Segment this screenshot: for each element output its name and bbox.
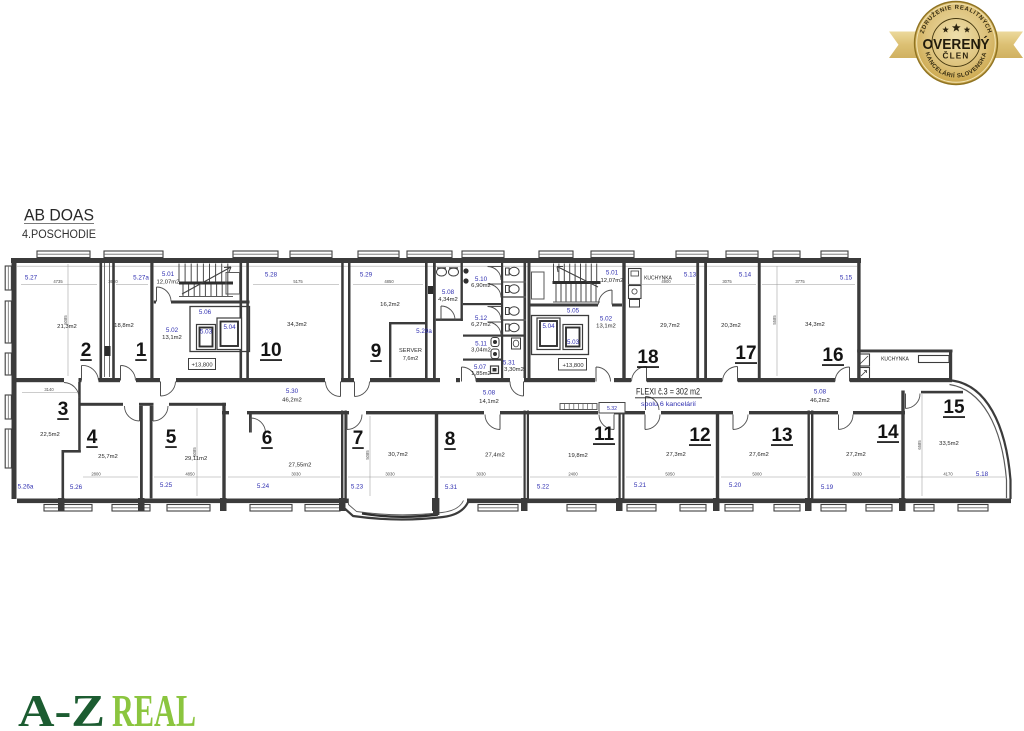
- svg-text:16,2m2: 16,2m2: [380, 302, 400, 308]
- svg-text:5000: 5000: [752, 472, 762, 477]
- svg-text:5.08: 5.08: [814, 389, 827, 396]
- svg-text:5175: 5175: [293, 279, 303, 284]
- svg-text:5.25: 5.25: [160, 482, 173, 489]
- svg-text:5085: 5085: [365, 450, 370, 460]
- svg-text:4: 4: [87, 427, 98, 448]
- svg-text:25,7m2: 25,7m2: [98, 454, 118, 460]
- svg-text:30,7m2: 30,7m2: [388, 452, 408, 458]
- svg-text:5.08: 5.08: [483, 390, 496, 397]
- svg-text:7: 7: [353, 428, 364, 449]
- svg-text:5.21: 5.21: [634, 482, 647, 489]
- svg-text:+13,800: +13,800: [562, 363, 583, 369]
- svg-text:6: 6: [262, 428, 273, 449]
- svg-text:5.07: 5.07: [474, 364, 487, 371]
- svg-text:5.04: 5.04: [542, 323, 555, 330]
- svg-text:REAL: REAL: [112, 685, 196, 731]
- svg-text:21,3m2: 21,3m2: [57, 324, 77, 330]
- svg-text:9: 9: [371, 341, 382, 362]
- svg-text:8: 8: [445, 429, 456, 450]
- svg-text:5.18: 5.18: [976, 471, 989, 478]
- svg-text:5.27a: 5.27a: [133, 275, 149, 282]
- svg-text:34,3m2: 34,3m2: [805, 322, 825, 328]
- svg-text:46,2m2: 46,2m2: [282, 398, 302, 404]
- svg-text:12,07m2: 12,07m2: [157, 280, 180, 286]
- svg-text:5.05: 5.05: [567, 308, 580, 315]
- svg-text:3030: 3030: [852, 472, 862, 477]
- svg-text:29,11m2: 29,11m2: [185, 456, 208, 462]
- svg-text:5.28: 5.28: [265, 272, 278, 279]
- svg-text:27,6m2: 27,6m2: [749, 452, 769, 458]
- svg-text:5585: 5585: [772, 315, 777, 325]
- svg-text:5.19: 5.19: [821, 484, 834, 491]
- svg-text:15: 15: [943, 397, 965, 418]
- svg-text:14,1m2: 14,1m2: [479, 399, 499, 405]
- svg-text:5.03: 5.03: [567, 339, 580, 346]
- svg-text:SERVER: SERVER: [399, 348, 422, 354]
- svg-text:27,3m2: 27,3m2: [666, 452, 686, 458]
- svg-text:3075: 3075: [722, 279, 732, 284]
- svg-text:34,3m2: 34,3m2: [287, 322, 307, 328]
- svg-text:5: 5: [166, 427, 177, 448]
- svg-text:10: 10: [260, 340, 281, 361]
- svg-text:5.12: 5.12: [475, 315, 488, 322]
- svg-text:5.02: 5.02: [600, 316, 613, 323]
- svg-text:5.29a: 5.29a: [416, 328, 432, 335]
- svg-text:5.11: 5.11: [475, 341, 487, 348]
- svg-text:18: 18: [637, 347, 658, 368]
- svg-text:5.23: 5.23: [351, 484, 364, 491]
- svg-text:2800: 2800: [91, 472, 101, 477]
- svg-text:6,27m2: 6,27m2: [471, 322, 491, 328]
- svg-text:27,2m2: 27,2m2: [846, 452, 866, 458]
- svg-text:17: 17: [735, 343, 756, 364]
- svg-text:5.02: 5.02: [166, 327, 179, 334]
- svg-text:4850: 4850: [185, 472, 195, 477]
- svg-text:ČLEN: ČLEN: [942, 50, 969, 61]
- svg-text:3,30m2: 3,30m2: [504, 367, 524, 373]
- svg-text:2400: 2400: [568, 472, 578, 477]
- svg-text:5.30: 5.30: [286, 388, 299, 395]
- svg-text:5.31: 5.31: [445, 484, 458, 491]
- svg-text:3030: 3030: [291, 472, 301, 477]
- svg-text:3630: 3630: [108, 279, 118, 284]
- svg-text:AB DOAS: AB DOAS: [24, 206, 94, 225]
- svg-text:13,1m2: 13,1m2: [596, 324, 616, 330]
- svg-text:3030: 3030: [385, 472, 395, 477]
- svg-text:6,90m2: 6,90m2: [471, 283, 491, 289]
- svg-text:5.06: 5.06: [199, 309, 212, 316]
- svg-text:5.24: 5.24: [257, 483, 270, 490]
- svg-text:4.POSCHODIE: 4.POSCHODIE: [22, 227, 96, 241]
- svg-text:5.26a: 5.26a: [18, 484, 34, 491]
- svg-text:2: 2: [81, 340, 92, 361]
- svg-text:4735: 4735: [53, 279, 63, 284]
- svg-text:19,8m2: 19,8m2: [568, 453, 588, 459]
- svg-text:13: 13: [771, 425, 792, 446]
- svg-text:5.32: 5.32: [607, 406, 617, 412]
- svg-text:5.08: 5.08: [442, 289, 455, 296]
- svg-text:5.31: 5.31: [503, 360, 516, 367]
- svg-text:3: 3: [58, 399, 69, 420]
- svg-text:33,5m2: 33,5m2: [939, 441, 959, 447]
- svg-text:1: 1: [136, 340, 147, 361]
- svg-text:1,85m2: 1,85m2: [471, 371, 491, 377]
- svg-text:FLEXI č.3 = 302 m2: FLEXI č.3 = 302 m2: [636, 387, 700, 397]
- svg-text:3775: 3775: [795, 279, 805, 284]
- svg-text:7,6m2: 7,6m2: [403, 356, 419, 362]
- svg-text:27,4m2: 27,4m2: [485, 453, 505, 459]
- svg-text:5.14: 5.14: [739, 272, 752, 279]
- svg-text:29,7m2: 29,7m2: [660, 323, 680, 329]
- svg-text:5.20: 5.20: [729, 482, 742, 489]
- svg-text:20,3m2: 20,3m2: [721, 323, 741, 329]
- svg-text:5050: 5050: [665, 472, 675, 477]
- svg-text:3030: 3030: [476, 472, 486, 477]
- svg-text:5.01: 5.01: [162, 271, 175, 278]
- svg-text:16: 16: [822, 345, 843, 366]
- svg-text:13,1m2: 13,1m2: [162, 335, 182, 341]
- svg-text:27,55m2: 27,55m2: [289, 463, 312, 469]
- svg-text:KUCHYNKA: KUCHYNKA: [644, 276, 672, 282]
- svg-text:OVERENÝ: OVERENÝ: [923, 35, 990, 53]
- svg-text:4170: 4170: [943, 472, 953, 477]
- svg-text:5.27: 5.27: [25, 275, 38, 282]
- svg-text:4,34m2: 4,34m2: [438, 297, 458, 303]
- svg-text:11: 11: [594, 424, 615, 445]
- svg-text:3,04m2: 3,04m2: [471, 348, 491, 354]
- svg-text:5.10: 5.10: [475, 276, 488, 283]
- svg-text:18,8m2: 18,8m2: [114, 323, 134, 329]
- svg-text:5.22: 5.22: [537, 484, 550, 491]
- svg-text:12: 12: [689, 425, 710, 446]
- svg-text:A-Z: A-Z: [18, 685, 105, 731]
- svg-text:5.04: 5.04: [223, 324, 236, 331]
- svg-text:14: 14: [877, 422, 899, 443]
- svg-text:6585: 6585: [917, 440, 922, 450]
- svg-text:5.13: 5.13: [684, 272, 697, 279]
- svg-text:12,07m2: 12,07m2: [601, 278, 624, 284]
- svg-text:KUCHYNKA: KUCHYNKA: [881, 357, 909, 363]
- svg-text:5.03: 5.03: [200, 329, 213, 336]
- svg-text:5.26: 5.26: [70, 484, 83, 491]
- svg-text:5.15: 5.15: [840, 275, 853, 282]
- svg-text:4850: 4850: [384, 279, 394, 284]
- svg-text:spolu 6 kancelárií: spolu 6 kancelárií: [641, 401, 696, 408]
- svg-text:3140: 3140: [44, 387, 54, 392]
- svg-text:46,2m2: 46,2m2: [810, 398, 830, 404]
- svg-text:5.29: 5.29: [360, 272, 373, 279]
- svg-text:22,5m2: 22,5m2: [40, 432, 60, 438]
- svg-text:+13,800: +13,800: [191, 363, 212, 369]
- svg-text:5.01: 5.01: [606, 270, 619, 277]
